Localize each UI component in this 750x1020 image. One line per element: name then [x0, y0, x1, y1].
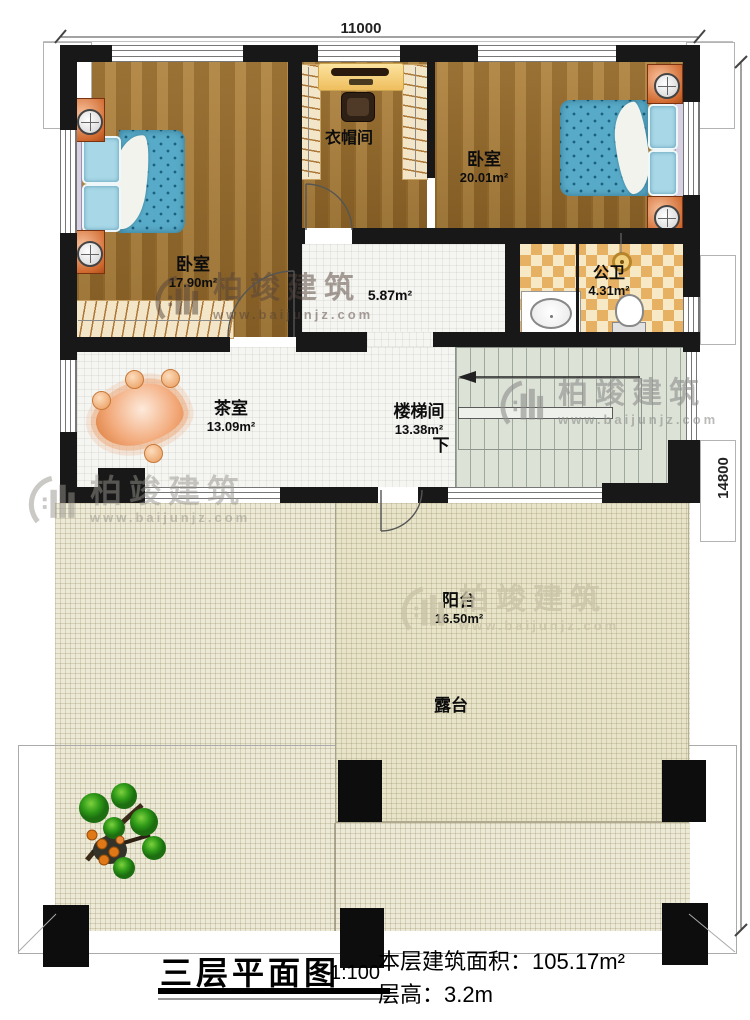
column — [338, 760, 382, 822]
room-area: 20.01m² — [424, 170, 544, 186]
wall — [60, 487, 98, 503]
wall — [433, 332, 683, 347]
sink — [530, 298, 572, 329]
room-area: 13.38m² — [359, 422, 479, 438]
pillow — [82, 136, 121, 184]
title-underline-thick — [158, 988, 390, 994]
stairs-down-label: 下 — [428, 436, 454, 456]
balcony-floor — [335, 503, 689, 823]
stairs-down-text: 下 — [428, 436, 454, 456]
dimension-top: 11000 — [326, 20, 396, 37]
window — [60, 360, 77, 432]
room-area: 17.90m² — [133, 275, 253, 291]
wall — [683, 332, 700, 352]
window — [683, 102, 700, 195]
window — [145, 487, 280, 503]
room-area: 5.87m² — [330, 287, 450, 304]
window — [60, 130, 77, 233]
wall — [243, 45, 318, 62]
wall — [288, 45, 302, 337]
room-name: 公卫 — [549, 264, 669, 283]
toilet — [615, 294, 644, 327]
wall — [98, 468, 145, 503]
room-label-hallway: 5.87m² — [330, 287, 450, 304]
wall — [352, 228, 683, 244]
wall — [683, 45, 700, 102]
lamp-icon — [654, 73, 680, 99]
room-name: 卧室 — [424, 150, 544, 170]
wall — [602, 483, 700, 503]
room-label-balcony: 阳台 16.50m² — [399, 591, 519, 627]
column — [662, 903, 708, 965]
pillow — [648, 150, 678, 196]
room-name: 露台 — [391, 696, 511, 716]
wall — [505, 244, 520, 332]
window — [478, 45, 616, 62]
drawing-scale: 1:100 — [330, 962, 380, 985]
room-name: 阳台 — [399, 591, 519, 611]
window — [448, 487, 602, 503]
room-name: 楼梯间 — [359, 402, 479, 422]
room-area: 13.09m² — [171, 419, 291, 435]
stool — [161, 369, 180, 388]
nightstand — [647, 64, 683, 104]
wall — [60, 45, 77, 130]
window — [318, 45, 400, 62]
room-name: 茶室 — [171, 399, 291, 419]
room-label-bedroom-left: 卧室 17.90m² — [133, 255, 253, 291]
wall — [288, 228, 305, 244]
projection-box — [700, 255, 736, 345]
projection-line — [43, 41, 733, 42]
window — [112, 45, 243, 62]
room-label-bathroom: 公卫 4.31m² — [549, 264, 669, 299]
dressing-table — [318, 63, 404, 91]
room-name: 卧室 — [133, 255, 253, 275]
wall — [683, 195, 700, 297]
column — [43, 905, 89, 967]
wall — [400, 45, 478, 62]
room-area: 4.31m² — [549, 283, 669, 299]
room-label-tea-room: 茶室 13.09m² — [171, 399, 291, 435]
stool — [125, 370, 144, 389]
room-label-bedroom-right: 卧室 20.01m² — [424, 150, 544, 186]
room-label-terrace: 露台 — [391, 696, 511, 716]
chair — [341, 92, 375, 122]
stool — [144, 444, 163, 463]
room-label-cloakroom: 衣帽间 — [289, 129, 409, 148]
title-underline-thin — [158, 998, 388, 1000]
dimension-right: 14800 — [715, 443, 731, 513]
window — [686, 352, 700, 440]
stool — [92, 391, 111, 410]
wall — [280, 487, 378, 503]
room-name: 衣帽间 — [289, 129, 409, 148]
pillow — [82, 184, 121, 232]
wall — [60, 337, 230, 352]
terrace-division-line — [334, 823, 336, 931]
lamp-icon — [77, 109, 103, 135]
wardrobe — [75, 300, 234, 339]
wall — [296, 332, 367, 352]
pillow — [648, 104, 678, 150]
plant — [62, 780, 182, 885]
stair-handrail — [458, 407, 613, 419]
room-label-stairwell: 楼梯间 13.38m² — [359, 402, 479, 438]
window — [683, 297, 700, 332]
floor-plan-canvas: 卧室 17.90m² 衣帽间 卧室 20.01m² 公卫 4.31m² 5.87… — [0, 0, 750, 1020]
floor-area-text: 本层建筑面积：105.17m² — [378, 944, 625, 976]
floor-height-text: 层高：3.2m — [378, 977, 493, 1009]
wall — [418, 487, 448, 503]
lamp-icon — [77, 241, 103, 267]
column — [662, 760, 706, 822]
room-area: 16.50m² — [399, 611, 519, 627]
